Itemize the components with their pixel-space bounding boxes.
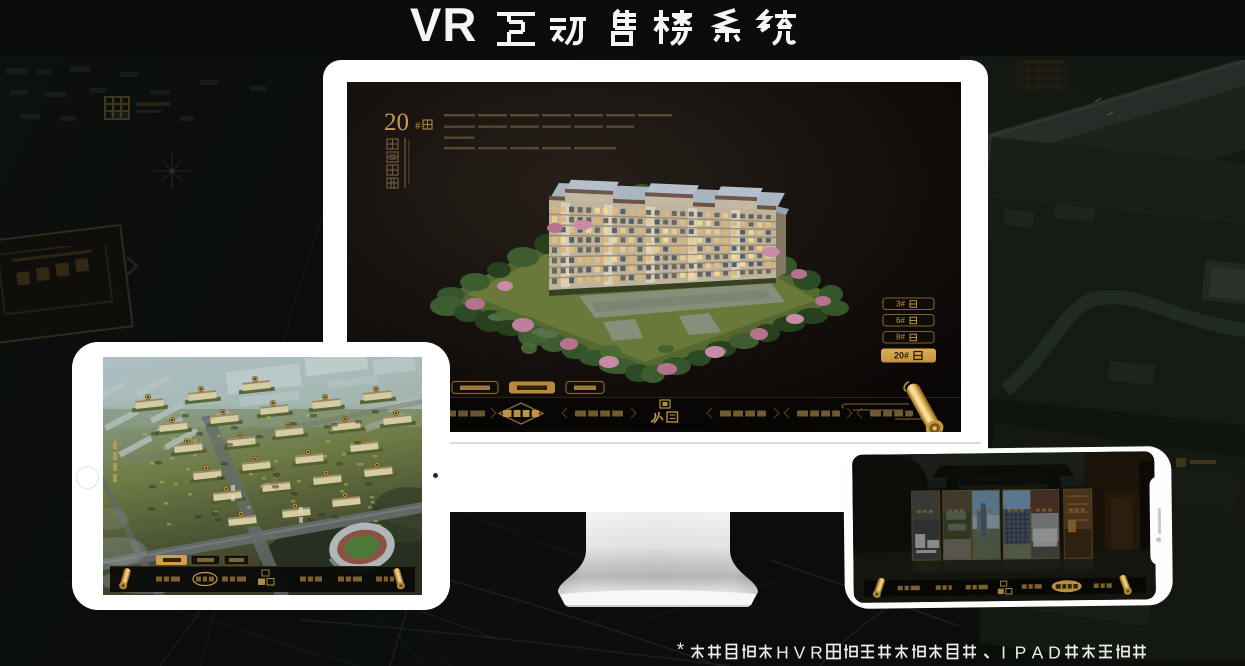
svg-text:V: V — [794, 643, 806, 663]
svg-text:3#: 3# — [896, 300, 905, 309]
svg-text:6#: 6# — [896, 316, 905, 325]
svg-text:20#: 20# — [894, 351, 909, 361]
svg-text:H: H — [776, 643, 789, 663]
svg-text:#: # — [415, 120, 421, 132]
svg-text:A: A — [1032, 643, 1044, 663]
svg-text:*: * — [677, 640, 685, 661]
svg-text:P: P — [1015, 643, 1027, 663]
svg-text:8#: 8# — [896, 333, 905, 342]
svg-text:I: I — [1001, 643, 1006, 663]
svg-text:R: R — [810, 643, 823, 663]
svg-text:20: 20 — [384, 109, 409, 136]
svg-text:D: D — [1048, 643, 1061, 663]
